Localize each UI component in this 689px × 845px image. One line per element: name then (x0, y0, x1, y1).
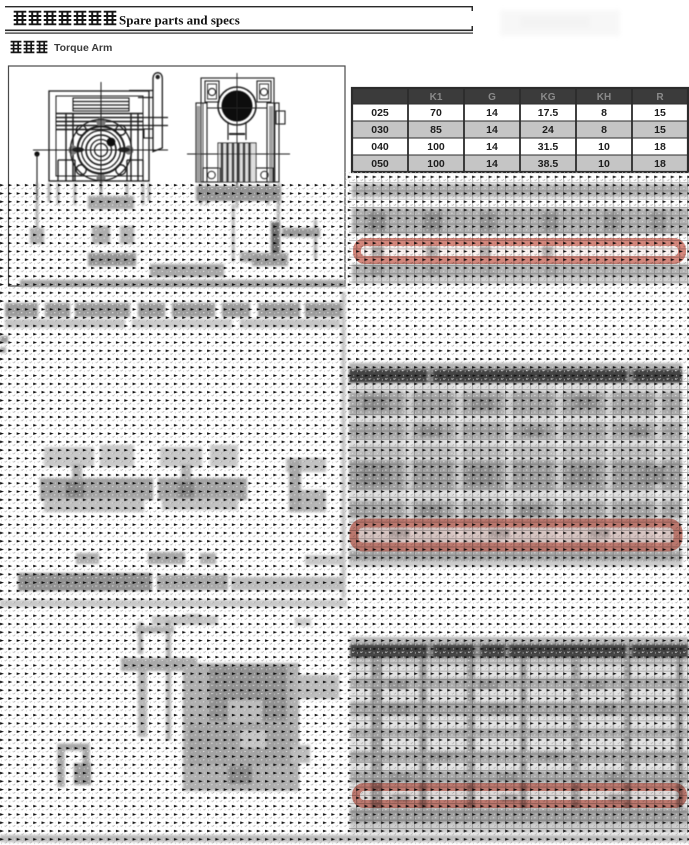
svg-text:G: G (488, 92, 496, 103)
svg-text:KH: KH (597, 92, 611, 103)
svg-text:18: 18 (654, 141, 666, 153)
svg-text:10: 10 (598, 141, 610, 153)
svg-text:31.5: 31.5 (538, 141, 559, 153)
svg-text:15: 15 (654, 124, 666, 136)
svg-text:38.5: 38.5 (538, 158, 559, 170)
svg-text:8: 8 (601, 124, 607, 136)
svg-text:100: 100 (427, 158, 445, 170)
svg-text:14: 14 (486, 107, 498, 119)
svg-text:050: 050 (371, 158, 389, 170)
svg-text:8: 8 (601, 107, 607, 119)
svg-text:14: 14 (486, 124, 498, 136)
svg-text:14: 14 (486, 158, 498, 170)
svg-text:KG: KG (541, 92, 556, 103)
svg-text:17.5: 17.5 (538, 107, 559, 119)
svg-text:Spare parts and specs: Spare parts and specs (119, 13, 240, 28)
svg-text:030: 030 (371, 124, 389, 136)
svg-text:K1: K1 (430, 92, 443, 103)
svg-text:85: 85 (430, 124, 442, 136)
svg-text:70: 70 (430, 107, 442, 119)
svg-text:025: 025 (371, 107, 389, 119)
svg-text:15: 15 (654, 107, 666, 119)
svg-text:R: R (656, 92, 664, 103)
svg-text:24: 24 (542, 124, 554, 136)
svg-text:Torque Arm: Torque Arm (54, 42, 112, 54)
svg-text:10: 10 (598, 158, 610, 170)
svg-text:18: 18 (654, 158, 666, 170)
svg-text:100: 100 (427, 141, 445, 153)
svg-text:14: 14 (486, 141, 498, 153)
svg-text:040: 040 (371, 141, 389, 153)
